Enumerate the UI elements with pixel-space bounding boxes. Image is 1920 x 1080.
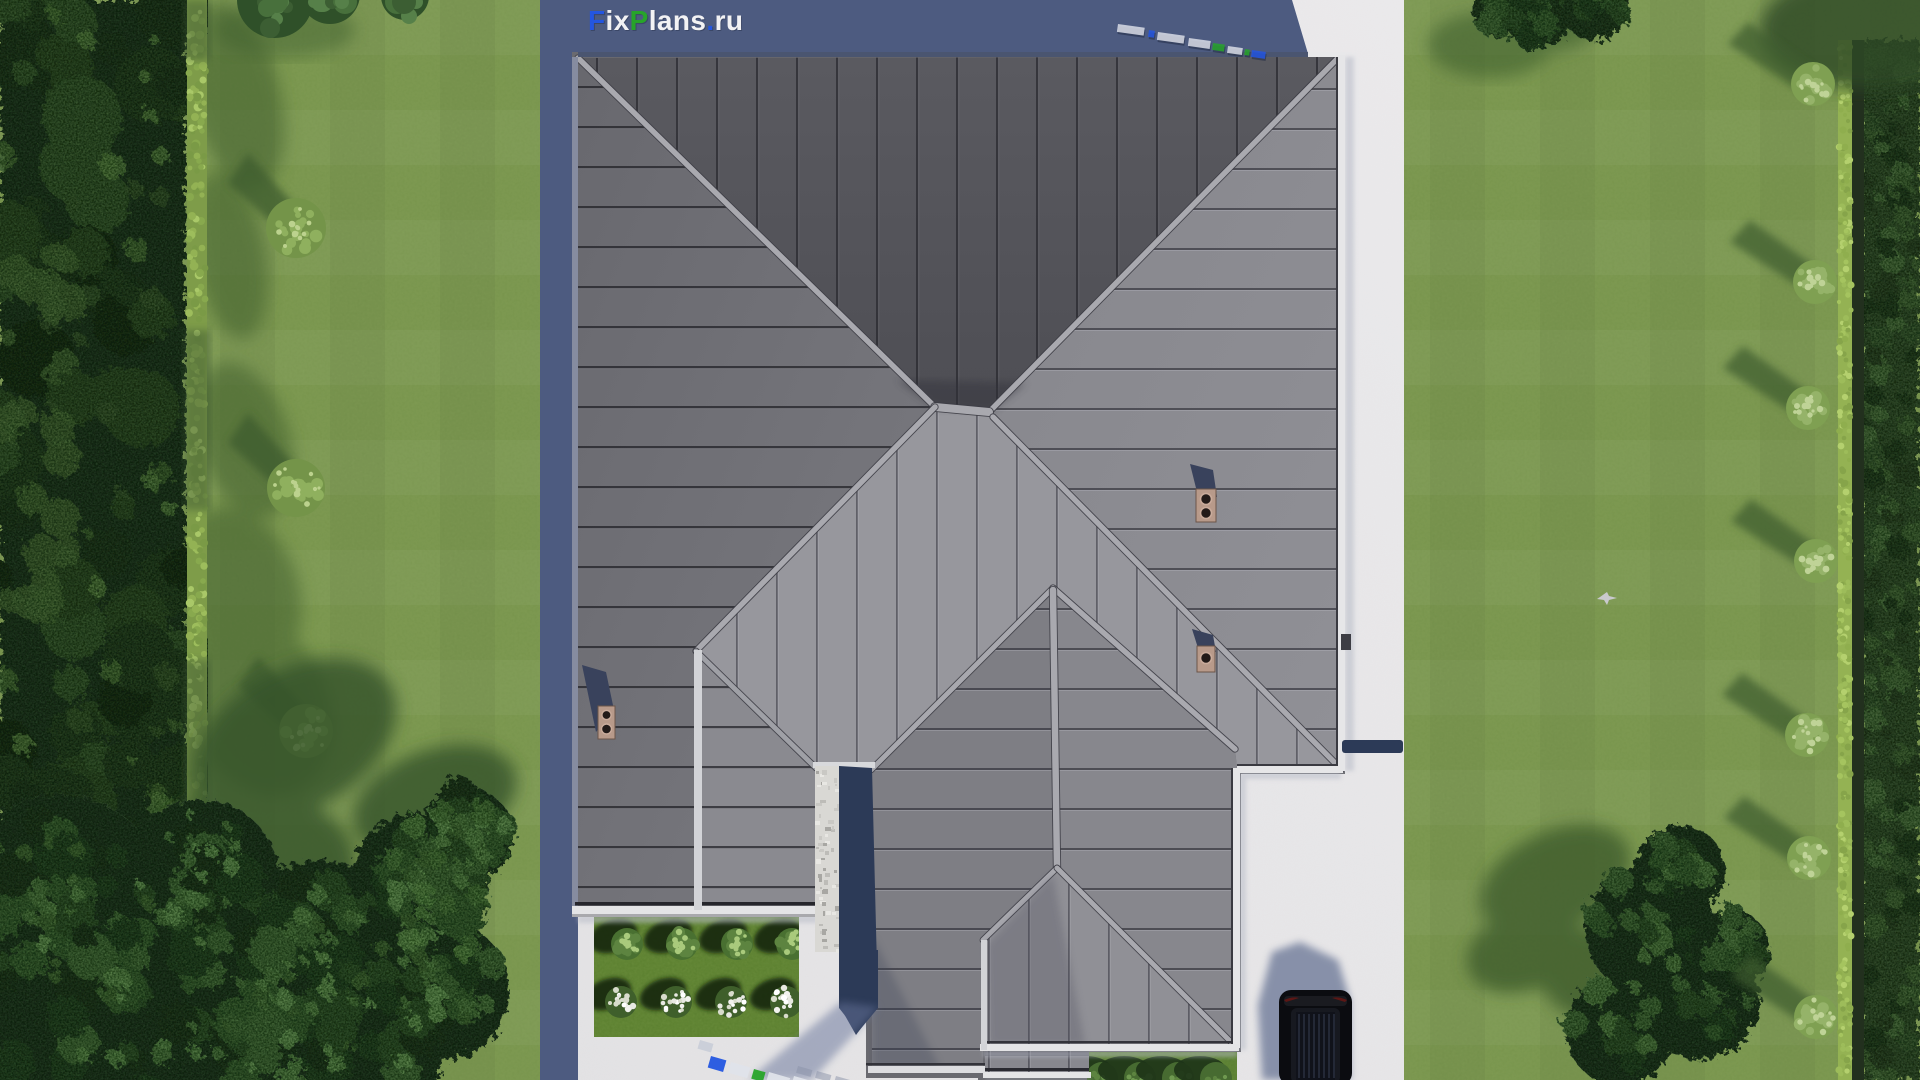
svg-text:FixPlans.ru: FixPlans.ru [588, 5, 743, 36]
